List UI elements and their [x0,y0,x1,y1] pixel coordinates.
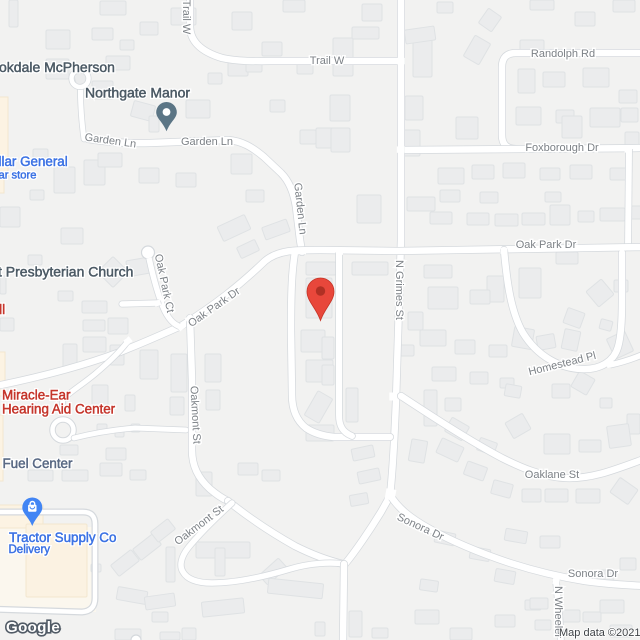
svg-text:Northgate Manor: Northgate Manor [85,85,190,101]
svg-text:Sonora Dr: Sonora Dr [568,568,618,580]
svg-text:Oak Park Dr: Oak Park Dr [516,239,577,251]
svg-text:Oaklane St: Oaklane St [525,469,579,481]
svg-text:llar General: llar General [0,154,68,169]
svg-text:Trail W: Trail W [310,55,345,67]
svg-text:Hearing Aid Center: Hearing Aid Center [2,402,116,417]
svg-text:Randolph Rd: Randolph Rd [531,48,595,60]
svg-text:ar store: ar store [0,170,36,182]
svg-text:ll: ll [0,301,5,317]
svg-text:Trail W: Trail W [180,0,192,35]
svg-text:Garden Ln: Garden Ln [181,136,233,148]
svg-text:okdale McPherson: okdale McPherson [0,59,115,75]
svg-text:Foxborough Dr: Foxborough Dr [525,142,599,154]
svg-text:t Presbyterian Church: t Presbyterian Church [0,264,133,280]
svg-text:Delivery: Delivery [9,544,51,556]
svg-text:Tractor Supply Co: Tractor Supply Co [9,530,116,545]
svg-text:Miracle-Ear: Miracle-Ear [2,388,71,403]
svg-text:Fuel Center: Fuel Center [3,456,74,471]
svg-text:Map data ©2021: Map data ©2021 [559,627,640,639]
svg-text:N Grimes St: N Grimes St [393,260,405,320]
svg-text:Google: Google [6,619,60,636]
